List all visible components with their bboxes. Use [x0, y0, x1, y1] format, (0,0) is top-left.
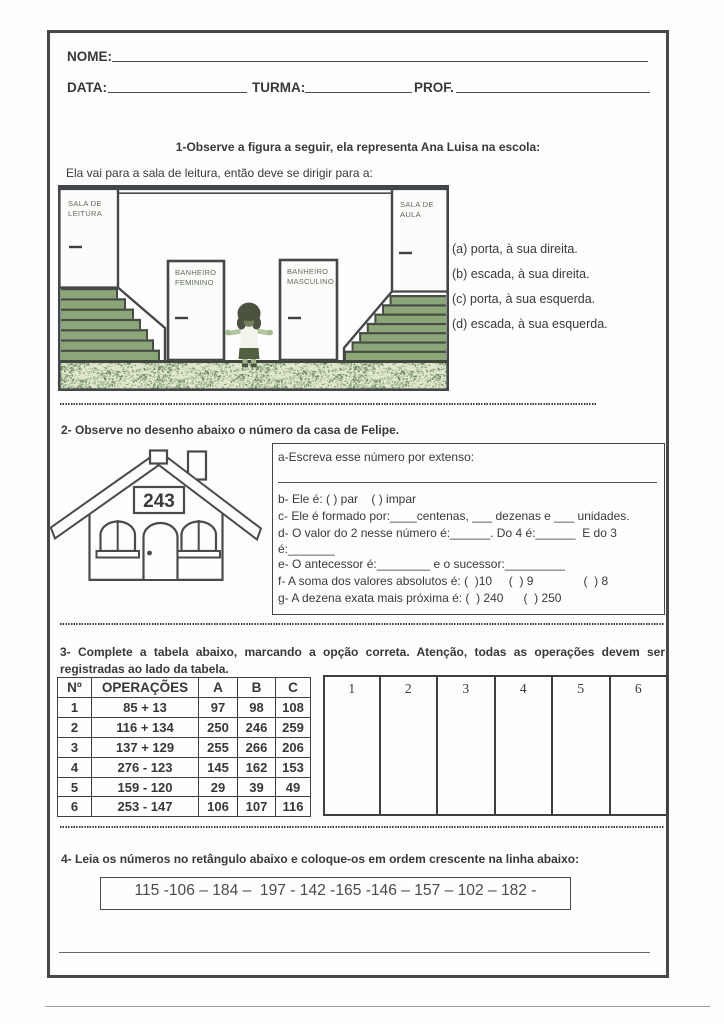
svg-text:AULA: AULA [400, 210, 422, 219]
svg-text:SALA DE: SALA DE [400, 200, 434, 209]
svg-text:BANHEIRO: BANHEIRO [287, 267, 328, 276]
svg-text:MASCULINO: MASCULINO [287, 277, 334, 286]
svg-text:243: 243 [143, 491, 175, 512]
svg-text:FEMININO: FEMININO [175, 278, 214, 287]
svg-text:BANHEIRO: BANHEIRO [175, 268, 216, 277]
svg-text:LEITURA: LEITURA [68, 209, 103, 218]
svg-text:SALA DE: SALA DE [68, 199, 102, 208]
